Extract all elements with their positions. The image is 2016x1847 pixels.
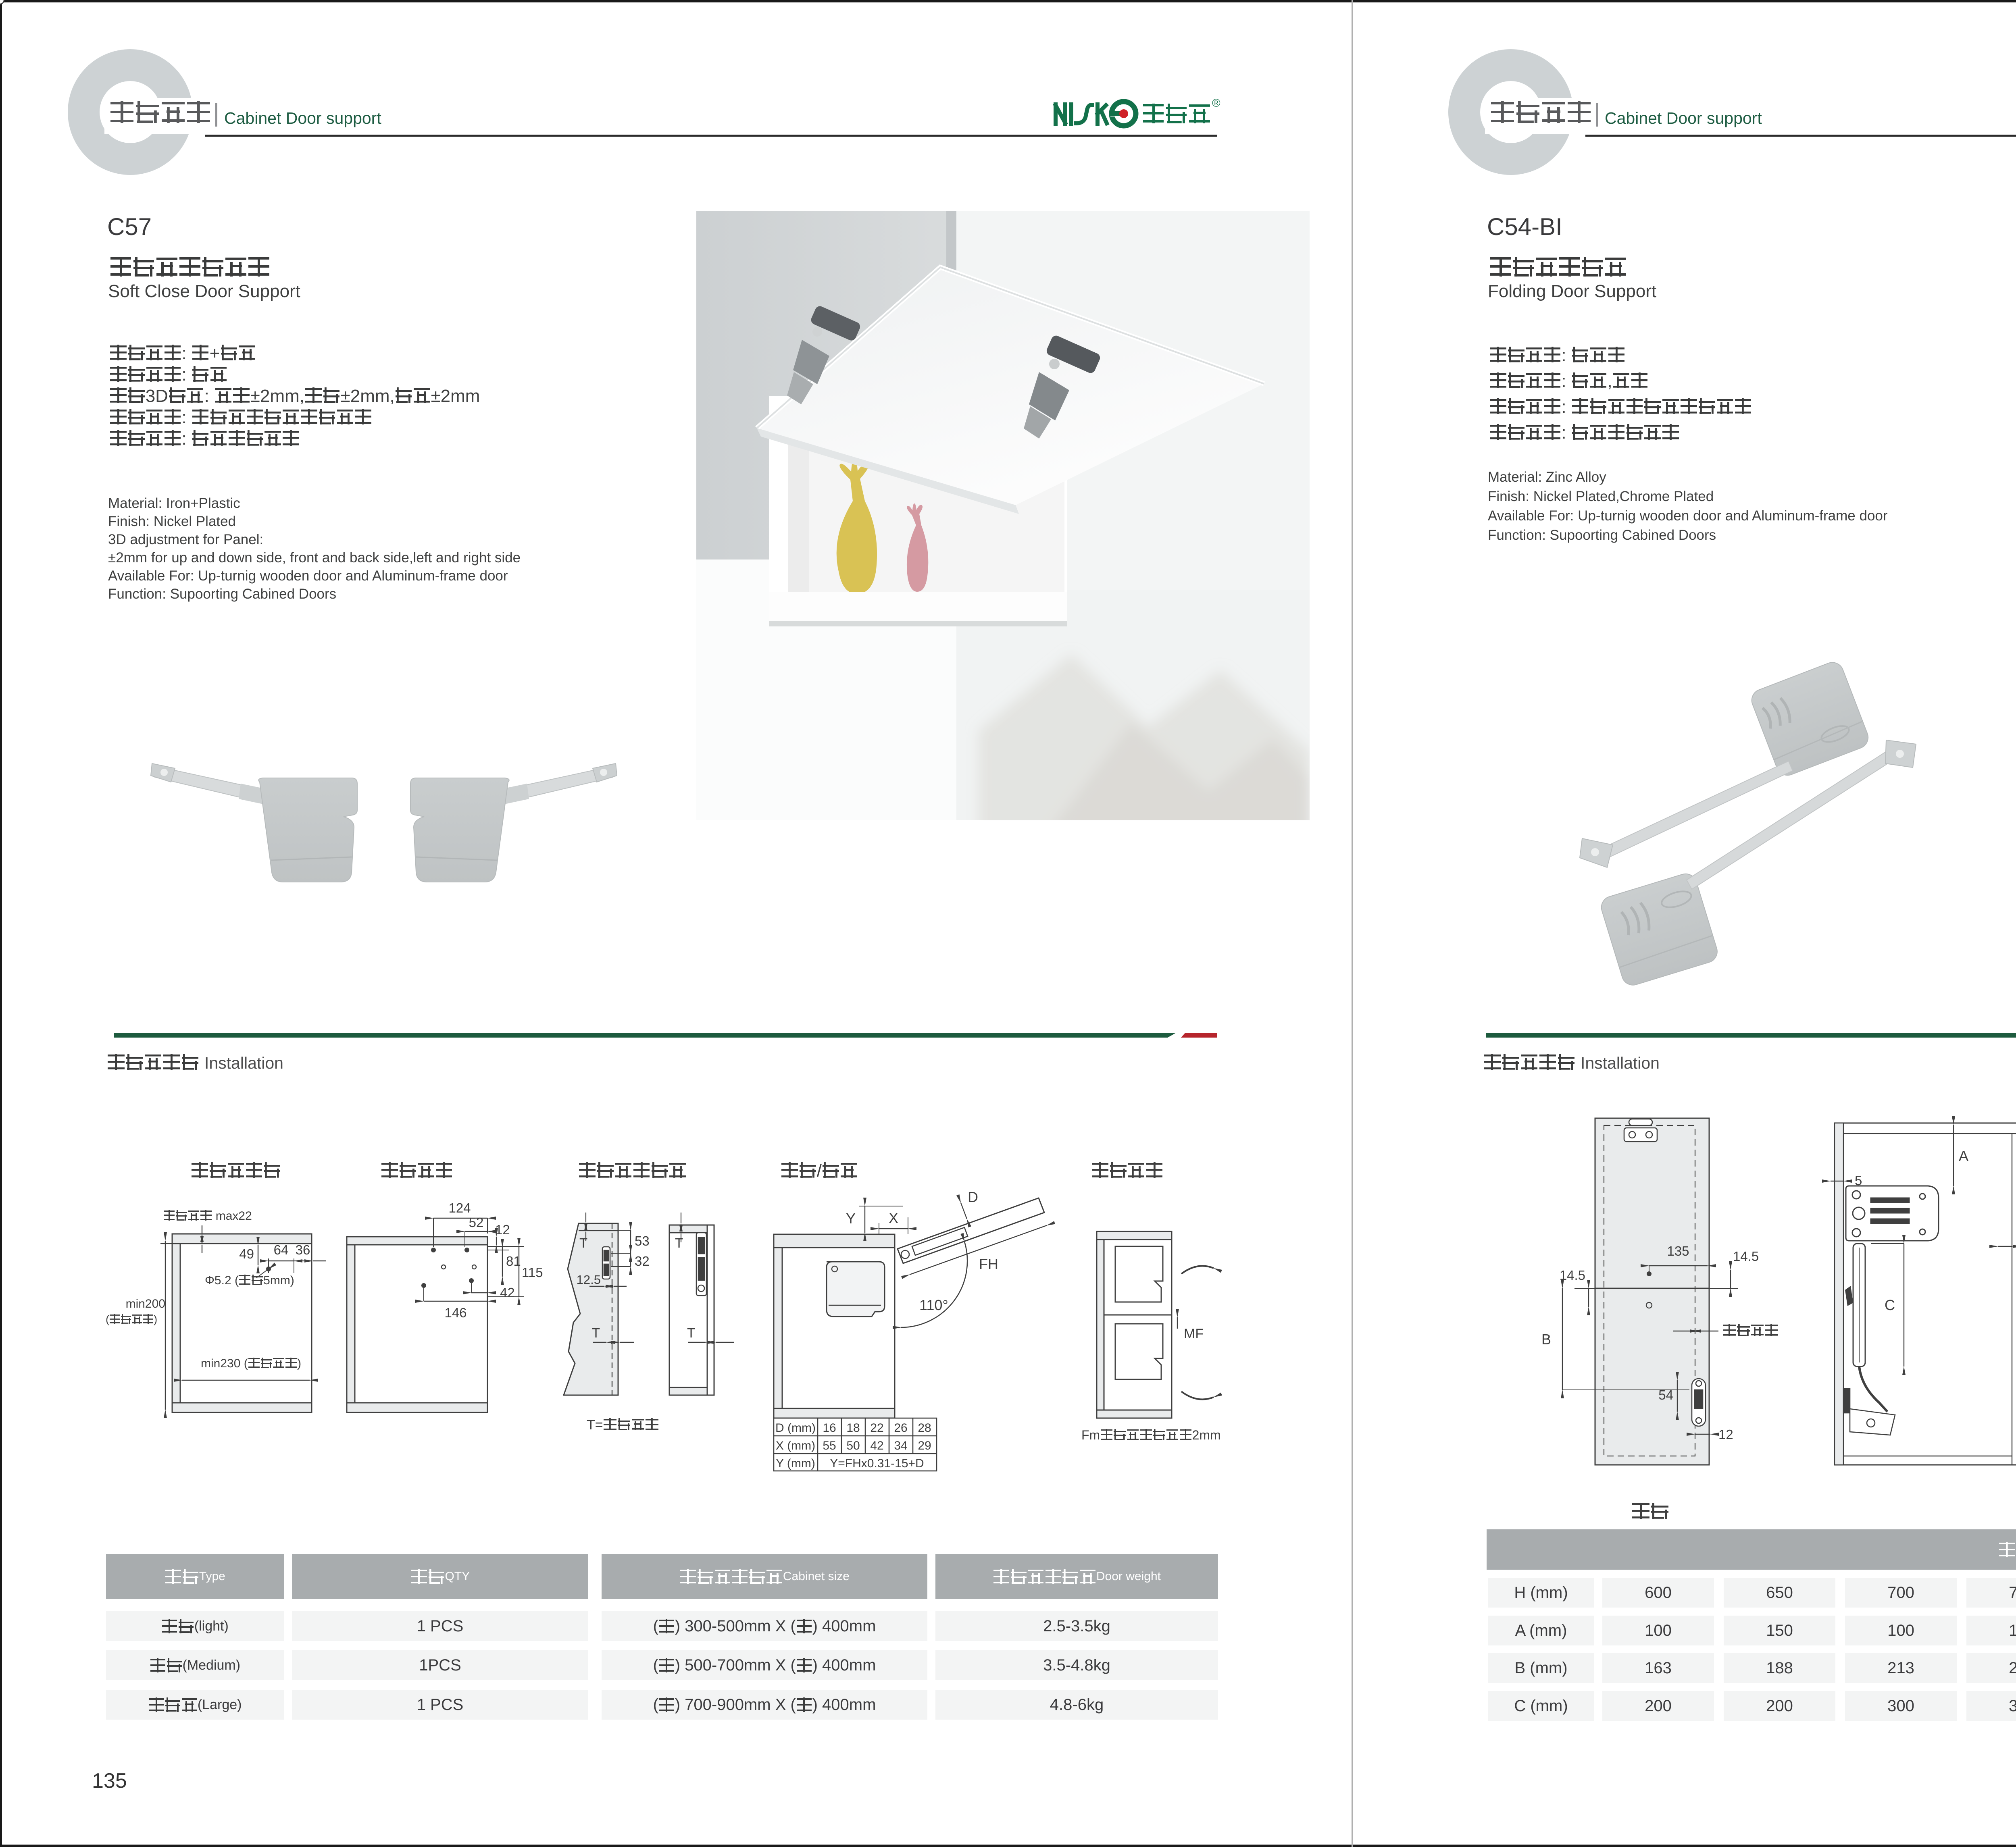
- svg-text:42: 42: [870, 1439, 883, 1452]
- svg-text:T: T: [687, 1325, 695, 1340]
- svg-text:A: A: [1959, 1148, 1968, 1164]
- svg-text:110°: 110°: [919, 1297, 948, 1313]
- svg-text:T: T: [579, 1235, 587, 1250]
- svg-text:135: 135: [1667, 1244, 1689, 1258]
- svg-text:53: 53: [635, 1233, 650, 1248]
- svg-text:D: D: [968, 1189, 978, 1205]
- svg-text:5: 5: [1855, 1173, 1862, 1188]
- svg-text:B: B: [1541, 1331, 1551, 1348]
- svg-text:64: 64: [274, 1242, 289, 1257]
- svg-text:D (mm): D (mm): [775, 1421, 816, 1435]
- svg-text:36: 36: [296, 1242, 310, 1257]
- svg-text:16: 16: [823, 1421, 836, 1435]
- svg-text:12.5: 12.5: [577, 1273, 601, 1287]
- svg-text:18: 18: [846, 1421, 860, 1435]
- svg-text:55: 55: [823, 1439, 836, 1452]
- svg-text:X (mm): X (mm): [776, 1439, 815, 1452]
- svg-text:124: 124: [448, 1200, 471, 1215]
- svg-text:12: 12: [495, 1222, 510, 1237]
- svg-text:12: 12: [1718, 1427, 1733, 1442]
- svg-text:22: 22: [870, 1421, 883, 1435]
- svg-text:T: T: [592, 1325, 600, 1340]
- svg-text:MF: MF: [1184, 1326, 1204, 1342]
- svg-text:115: 115: [522, 1265, 543, 1280]
- svg-text:Y: Y: [846, 1210, 856, 1227]
- svg-text:32: 32: [635, 1254, 650, 1269]
- svg-text:Y=FHx0.31-15+D: Y=FHx0.31-15+D: [830, 1457, 924, 1470]
- svg-text:14.5: 14.5: [1733, 1249, 1759, 1264]
- svg-text:29: 29: [918, 1439, 931, 1452]
- svg-text:X: X: [889, 1210, 898, 1226]
- svg-text:T: T: [675, 1235, 683, 1250]
- svg-text:146: 146: [444, 1305, 467, 1320]
- svg-text:52: 52: [469, 1215, 484, 1230]
- svg-text:Y (mm): Y (mm): [776, 1457, 815, 1470]
- svg-text:49: 49: [239, 1246, 254, 1261]
- svg-text:FH: FH: [979, 1256, 998, 1272]
- svg-text:34: 34: [894, 1439, 907, 1452]
- svg-text:42: 42: [500, 1285, 515, 1300]
- svg-text:C: C: [1885, 1297, 1895, 1313]
- svg-text:28: 28: [918, 1421, 931, 1435]
- svg-text:14.5: 14.5: [1560, 1268, 1585, 1283]
- svg-text:54: 54: [1658, 1387, 1673, 1402]
- svg-text:50: 50: [846, 1439, 860, 1452]
- svg-text:26: 26: [894, 1421, 907, 1435]
